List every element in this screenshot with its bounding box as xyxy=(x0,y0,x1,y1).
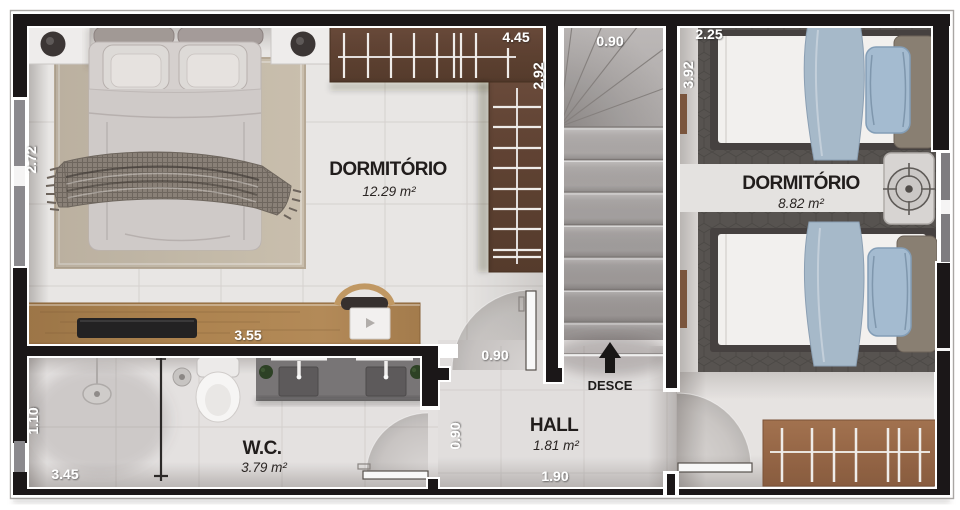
svg-text:2.25: 2.25 xyxy=(695,26,722,42)
svg-text:3.79 m²: 3.79 m² xyxy=(241,460,287,475)
svg-text:3.92: 3.92 xyxy=(680,61,696,88)
svg-text:W.C.: W.C. xyxy=(243,438,282,459)
svg-text:1.81 m²: 1.81 m² xyxy=(533,438,579,453)
svg-text:2.72: 2.72 xyxy=(23,146,39,173)
svg-text:1.10: 1.10 xyxy=(25,407,41,434)
svg-text:0.90: 0.90 xyxy=(447,422,463,449)
svg-text:0.90: 0.90 xyxy=(481,347,508,363)
svg-text:8.82 m²: 8.82 m² xyxy=(778,196,824,211)
svg-text:3.55: 3.55 xyxy=(234,327,261,343)
svg-text:DORMITÓRIO: DORMITÓRIO xyxy=(329,158,447,180)
svg-text:HALL: HALL xyxy=(530,415,579,436)
svg-text:3.45: 3.45 xyxy=(51,466,78,482)
svg-text:DORMITÓRIO: DORMITÓRIO xyxy=(742,172,860,194)
svg-text:1.90: 1.90 xyxy=(541,468,568,484)
svg-text:4.45: 4.45 xyxy=(502,29,529,45)
svg-text:12.29 m²: 12.29 m² xyxy=(362,184,416,199)
svg-text:0.90: 0.90 xyxy=(596,33,623,49)
svg-text:2.92: 2.92 xyxy=(530,62,546,89)
